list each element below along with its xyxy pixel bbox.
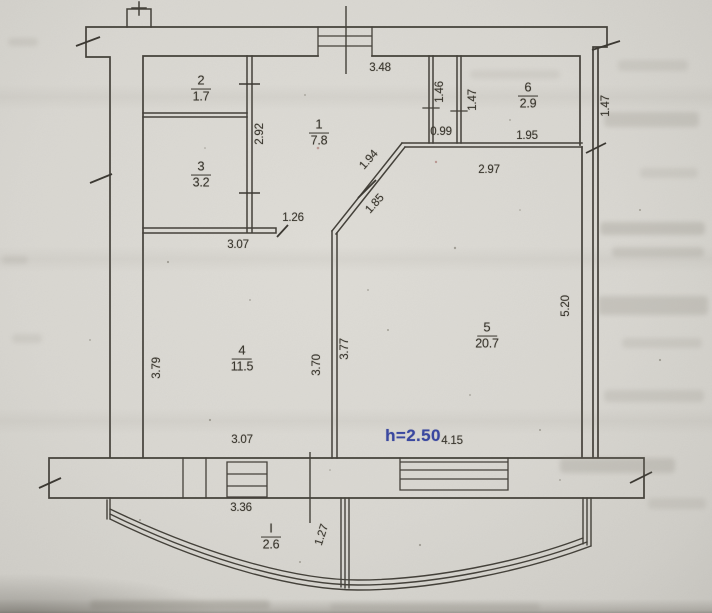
room-number: 1 [309, 118, 329, 134]
dimension-label: 4.15 [441, 435, 463, 447]
dimension-label: 3.07 [231, 434, 253, 446]
dimension-label: 0.99 [430, 126, 452, 138]
paper-grain [0, 0, 712, 613]
room-area: 11.5 [231, 359, 254, 373]
room-area: 20.7 [475, 336, 499, 350]
room-number: 3 [191, 160, 211, 176]
dimension-label: 3.36 [230, 502, 252, 514]
room-area: 7.8 [309, 133, 329, 147]
dimension-label: 1.46 [434, 81, 446, 103]
dimension-label: 1.95 [516, 130, 538, 142]
dimension-label: 3.77 [339, 338, 351, 360]
floorplan-drawing [0, 0, 712, 613]
room-area: 3.2 [191, 175, 211, 189]
room-area: 2.9 [518, 96, 538, 110]
room-area: 2.6 [261, 537, 281, 551]
dimension-label: 3.48 [369, 62, 391, 74]
room-label-I: I2.6 [261, 521, 281, 552]
dimension-label: 3.70 [311, 354, 323, 376]
room-label-5: 520.7 [475, 320, 499, 351]
dimension-label: 5.20 [560, 295, 572, 317]
room-area: 1.7 [191, 89, 211, 103]
room-number: 5 [477, 321, 497, 337]
room-label-2: 21.7 [191, 73, 211, 104]
room-number: 2 [191, 74, 211, 90]
dimension-label: 2.92 [254, 123, 266, 145]
scanned-floorplan-page: 3.482.921.461.471.470.991.952.971.941.85… [0, 0, 712, 613]
dimension-label: 3.79 [151, 357, 163, 379]
dimension-label: 1.26 [282, 212, 304, 224]
room-number: 4 [232, 344, 252, 360]
room-label-6: 62.9 [518, 80, 538, 111]
room-label-1: 17.8 [309, 117, 329, 148]
room-label-4: 411.5 [231, 343, 254, 374]
room-number: 6 [518, 81, 538, 97]
dimension-label: 1.47 [467, 89, 479, 111]
ceiling-height-label: h=2.50 [385, 426, 441, 446]
dimension-label: 2.97 [478, 164, 500, 176]
room-number: I [261, 522, 281, 538]
room-label-3: 33.2 [191, 159, 211, 190]
dimension-label: 3.07 [227, 239, 249, 251]
dimension-label: 1.47 [600, 95, 612, 117]
